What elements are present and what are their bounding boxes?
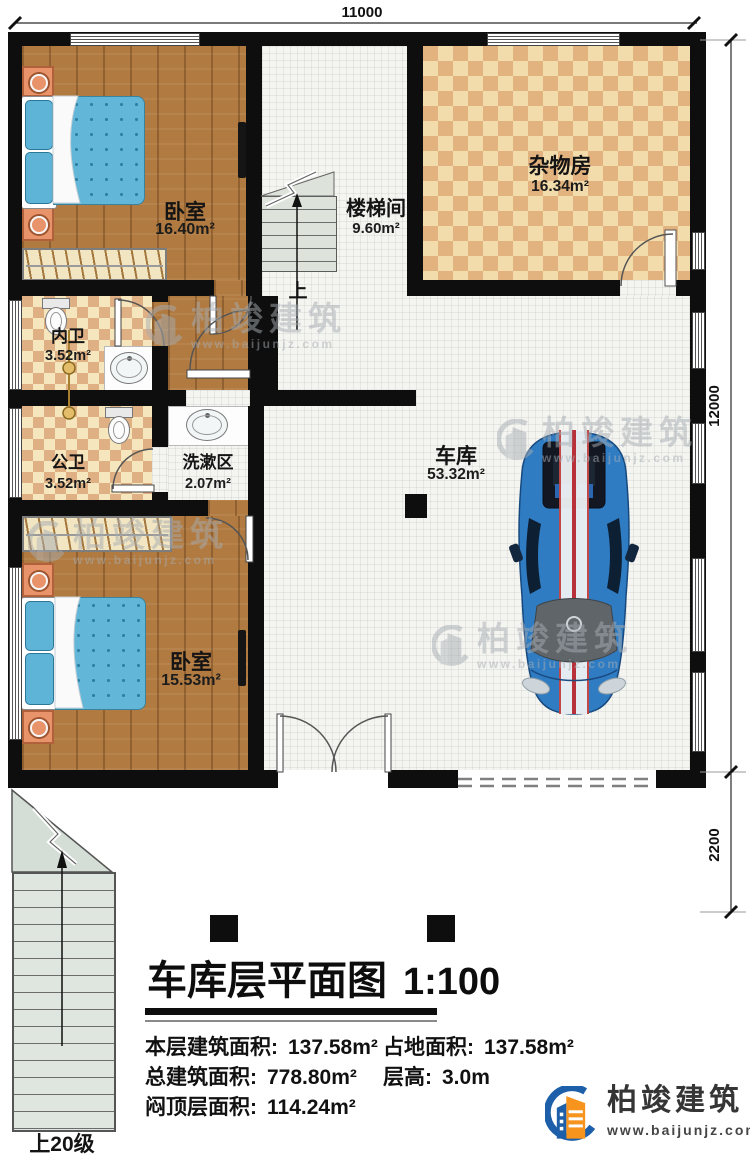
watermark: 柏竣建筑www.baijunjz.com: [146, 302, 347, 351]
stairwell-steps: [261, 196, 337, 272]
window: [692, 672, 705, 752]
room-label: 洗漱区: [169, 448, 247, 473]
toilet-bowl: [108, 416, 130, 444]
stair-up-label: 上: [288, 276, 308, 303]
tv: [238, 630, 246, 686]
brand-logo-icon: [545, 1086, 597, 1144]
window: [9, 567, 22, 740]
storage-door-gap: [620, 280, 676, 296]
watermark: 柏竣建筑www.baijunjz.com: [497, 416, 698, 465]
title-underline-thin: [145, 1020, 437, 1022]
window: [9, 408, 22, 498]
wall-storage-left: [407, 32, 423, 296]
wall-right: [690, 32, 706, 770]
brand-name: 柏竣建筑: [607, 1086, 750, 1116]
floor-plan-page: 11000 12000 2200 卧室 16.40m² 楼梯间 9.60m² 杂…: [0, 0, 750, 1159]
brand-url: www.baijunjz.com: [607, 1122, 750, 1138]
wall-wash-right: [248, 406, 264, 770]
wall-storage-bottom: [407, 280, 620, 296]
nightstand: [22, 66, 54, 97]
bed-mattress: [53, 96, 145, 205]
window: [692, 232, 705, 270]
dim-top-label: 11000: [342, 4, 383, 21]
room-area: 3.52m²: [38, 348, 98, 364]
bed-pillow: [25, 152, 53, 204]
exterior-stair-cap: [12, 790, 112, 872]
garage-column: [405, 494, 427, 518]
watermark-logo-icon: [497, 419, 535, 463]
stat-row: 本层建筑面积:137.58m²: [145, 1031, 378, 1061]
nightstand: [22, 207, 54, 241]
bedroom2-door-gap: [208, 500, 248, 516]
room-area: 9.60m²: [340, 220, 412, 237]
watermark-logo-icon: [28, 521, 66, 565]
wall-mid-horizontal: [248, 390, 416, 406]
wash-basin: [186, 409, 228, 441]
bed-pillow: [25, 100, 53, 150]
watermark-name: 柏竣建筑: [477, 622, 633, 655]
sink-basin: [110, 352, 148, 384]
bed-pillow: [25, 653, 54, 705]
dim-right-lower-label: 2200: [706, 828, 723, 861]
tv: [238, 122, 246, 178]
room-area: 2.07m²: [176, 476, 240, 492]
window: [487, 33, 620, 46]
stat-row: 占地面积:137.58m²: [383, 1031, 574, 1061]
window: [70, 33, 200, 46]
wall-bath-inner-right: [152, 346, 168, 390]
nightstand: [22, 563, 54, 597]
wall-bedroom2-top: [8, 500, 208, 516]
room-area: 16.34m²: [522, 178, 598, 196]
watermark-logo-icon: [432, 625, 470, 669]
wash-door-gap: [186, 390, 250, 406]
stat-row: 总建筑面积:778.80m²: [145, 1061, 357, 1091]
room-area: 16.40m²: [146, 221, 224, 239]
title-text: 车库层平面图: [147, 959, 387, 1003]
room-label: 内卫: [42, 322, 94, 347]
room-label: 公卫: [42, 448, 94, 473]
room-area: 3.52m²: [38, 476, 98, 492]
watermark-name: 柏竣建筑: [73, 518, 229, 551]
wall-mid-horizontal: [8, 390, 186, 406]
column-marker: [210, 915, 238, 942]
watermark: 柏竣建筑www.baijunjz.com: [28, 518, 229, 567]
car: [503, 426, 645, 718]
title-scale: 1:100: [403, 961, 500, 1003]
wall-storage-bottom: [676, 280, 690, 296]
brand-logo: 柏竣建筑 www.baijunjz.com: [545, 1086, 750, 1144]
drawing-title: 车库层平面图1:100: [147, 948, 500, 1006]
wall-bottom: [388, 770, 458, 788]
watermark-logo-icon: [146, 305, 184, 349]
column-marker: [427, 915, 455, 942]
wall-bottom: [656, 770, 706, 788]
watermark-url: www.baijunjz.com: [191, 337, 347, 351]
stat-row: 闷顶层面积:114.24m²: [145, 1091, 356, 1121]
bedroom1-door-gap: [214, 280, 246, 296]
bed-mattress: [55, 597, 146, 710]
room-area: 53.32m²: [424, 466, 488, 484]
window: [9, 300, 22, 390]
watermark-name: 柏竣建筑: [191, 302, 347, 335]
window: [692, 312, 705, 369]
nightstand: [22, 710, 54, 744]
room-label: 楼梯间: [336, 192, 416, 221]
watermark-url: www.baijunjz.com: [477, 657, 633, 671]
watermark-url: www.baijunjz.com: [73, 553, 229, 567]
title-underline-thick: [145, 1008, 437, 1015]
wall-bath-public-right: [152, 406, 168, 447]
watermark: 柏竣建筑www.baijunjz.com: [432, 622, 633, 671]
watermark-name: 柏竣建筑: [542, 416, 698, 449]
window: [692, 558, 705, 652]
watermark-url: www.baijunjz.com: [542, 451, 698, 465]
wall-bottom: [8, 770, 278, 788]
exterior-stairs-label: 上20级: [24, 1128, 100, 1158]
wardrobe: [22, 248, 167, 281]
wall-bedroom1-right: [246, 32, 262, 296]
wall-bath-public-right: [152, 492, 168, 500]
room-area: 15.53m²: [152, 672, 230, 690]
stat-row: 层高:3.0m: [383, 1061, 490, 1091]
bed-pillow: [25, 601, 54, 651]
dim-right-upper-label: 12000: [706, 385, 723, 427]
exterior-stairs: [12, 872, 116, 1132]
wall-bedroom1-bottom: [8, 280, 214, 296]
bath-public-door-gap: [152, 447, 168, 492]
room-label: 杂物房: [520, 150, 600, 180]
